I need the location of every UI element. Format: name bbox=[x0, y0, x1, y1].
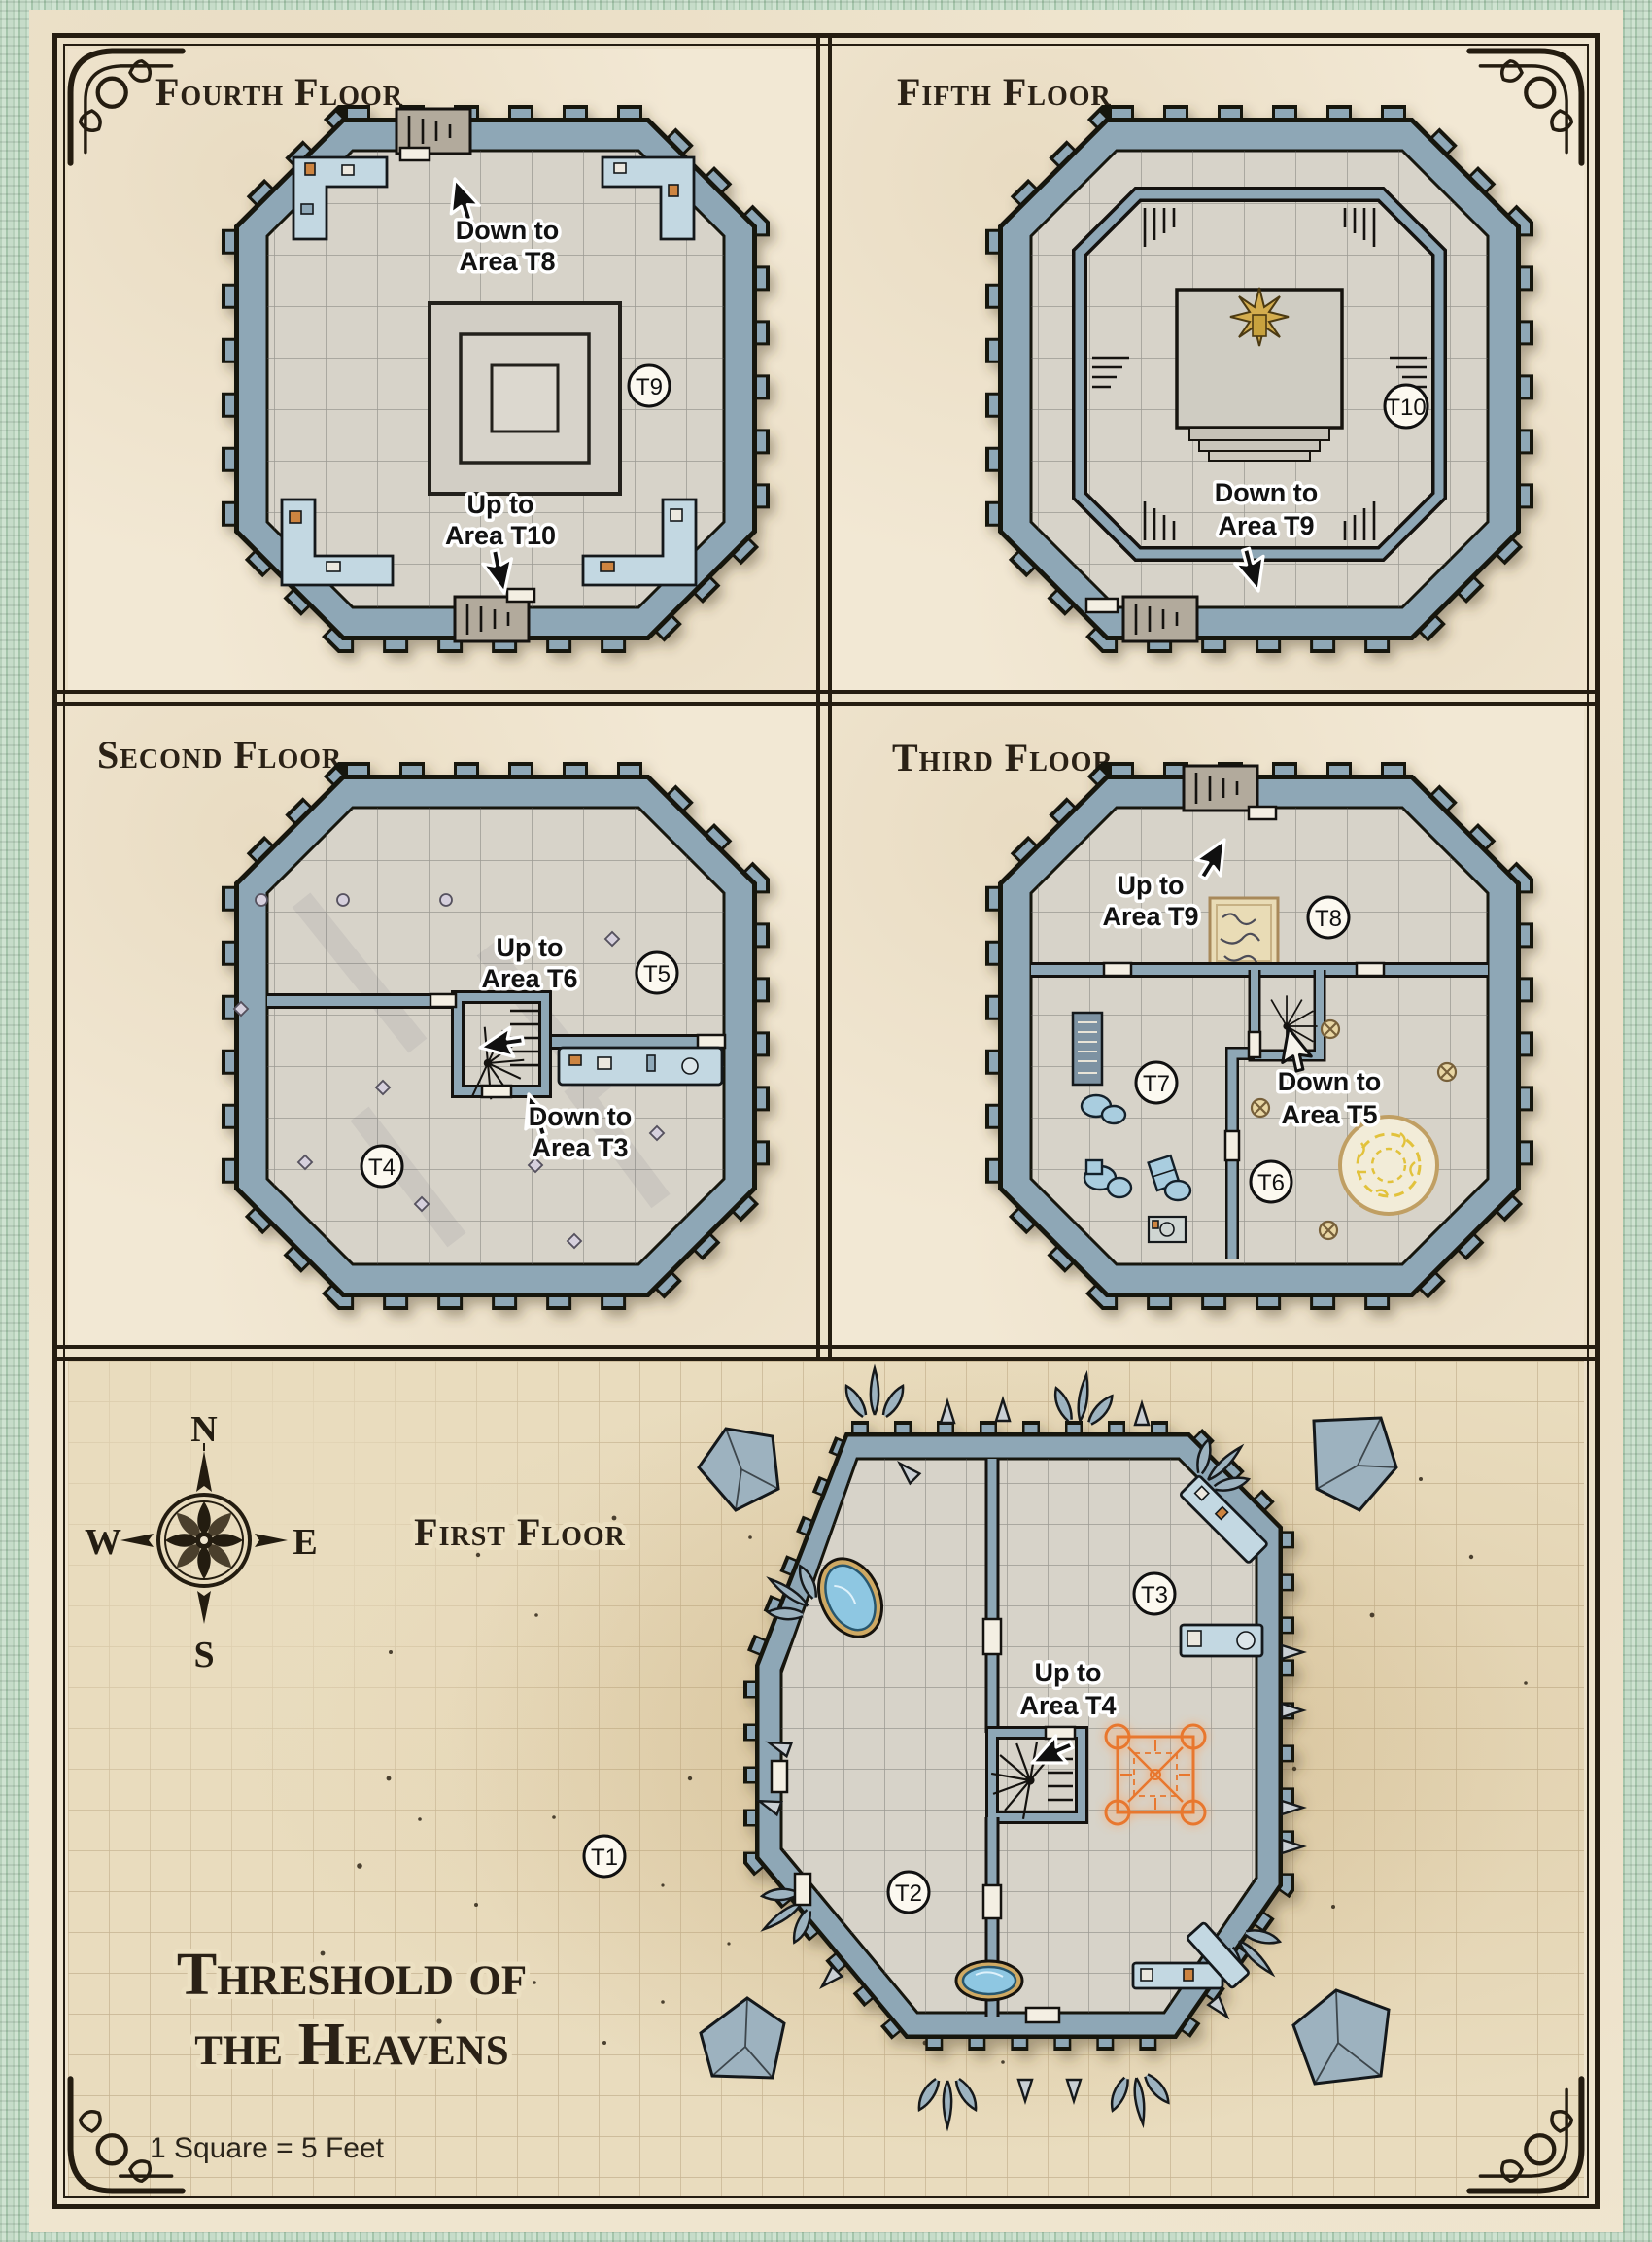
fifth-floor-map: Fifth Floor bbox=[832, 49, 1584, 690]
stair-label-up: Area T9 bbox=[1102, 902, 1198, 931]
door bbox=[1046, 1727, 1075, 1739]
svg-text:T3: T3 bbox=[1141, 1582, 1168, 1608]
stair-label-down: Down to bbox=[1278, 1067, 1381, 1096]
svg-text:T4: T4 bbox=[368, 1155, 396, 1181]
stair-label-down: Down to bbox=[456, 216, 559, 245]
panel-title: Fifth Floor bbox=[897, 70, 1112, 114]
stair-label-up: Area T6 bbox=[481, 964, 577, 993]
third-floor-map: Third Floor bbox=[832, 706, 1584, 1345]
floor-panel-fourth: Fourth Floor Down to bbox=[68, 49, 816, 690]
stair-label-up: Up to bbox=[467, 490, 534, 519]
door bbox=[1249, 1032, 1260, 1057]
compass-label-n: N bbox=[190, 1409, 217, 1450]
parchment-page: Fourth Floor Down to bbox=[29, 10, 1623, 2232]
stairs-up-icon bbox=[1184, 766, 1257, 811]
stair-label-down: Down to bbox=[529, 1102, 632, 1131]
stair-label-up: Up to bbox=[497, 933, 564, 962]
statue-icon bbox=[1230, 288, 1289, 346]
door bbox=[772, 1761, 787, 1792]
pool bbox=[956, 1961, 1022, 2000]
stair-label-up: Area T4 bbox=[1019, 1691, 1116, 1720]
central-stepped-platform bbox=[430, 303, 620, 494]
first-floor-map: N E S W First Floor bbox=[68, 1361, 1584, 2196]
area-marker-t2: T2 bbox=[888, 1872, 929, 1913]
stair-label-up: Up to bbox=[1118, 871, 1185, 900]
svg-text:T2: T2 bbox=[895, 1880, 922, 1907]
door bbox=[983, 1885, 1001, 1918]
map-sheet: Fourth Floor Down to bbox=[0, 0, 1652, 2242]
panel-divider-horizontal bbox=[52, 1345, 1600, 1361]
area-marker-t8: T8 bbox=[1308, 897, 1349, 938]
svg-text:T1: T1 bbox=[591, 1845, 618, 1871]
door bbox=[430, 994, 456, 1007]
rug bbox=[1210, 898, 1278, 968]
door bbox=[698, 1035, 725, 1048]
area-marker-t4: T4 bbox=[361, 1146, 402, 1187]
door bbox=[482, 1086, 511, 1097]
door bbox=[1026, 2008, 1059, 2022]
workbench bbox=[559, 1048, 722, 1085]
stair-label-up: Area T10 bbox=[445, 521, 556, 550]
svg-text:T6: T6 bbox=[1257, 1170, 1285, 1196]
stair-label-down: Down to bbox=[1215, 478, 1318, 507]
svg-text:T7: T7 bbox=[1143, 1071, 1170, 1097]
stair-label-down: Area T3 bbox=[532, 1133, 628, 1162]
door bbox=[1104, 963, 1131, 976]
door bbox=[983, 1619, 1001, 1654]
compass-label-s: S bbox=[193, 1635, 214, 1675]
panel-title: First Floor bbox=[414, 1510, 626, 1554]
panel-title: Second Floor bbox=[97, 733, 342, 776]
stair-label-down: Area T9 bbox=[1218, 511, 1314, 540]
area-marker-t5: T5 bbox=[637, 952, 677, 993]
floor-panel-first: N E S W First Floor bbox=[68, 1361, 1584, 2196]
map-title-line2: the Heavens bbox=[194, 2012, 508, 2078]
stair-label-up: Up to bbox=[1035, 1658, 1102, 1687]
svg-text:T8: T8 bbox=[1315, 906, 1342, 932]
stairs-down-icon bbox=[1123, 597, 1197, 641]
panel-title: Third Floor bbox=[892, 736, 1114, 779]
door bbox=[1249, 807, 1276, 819]
compass-label-e: E bbox=[293, 1522, 317, 1563]
stair-label-down: Area T8 bbox=[459, 247, 555, 276]
door bbox=[507, 589, 534, 602]
area-marker-t9: T9 bbox=[629, 365, 670, 406]
floor-panel-third: Third Floor bbox=[832, 706, 1584, 1345]
door bbox=[1357, 963, 1384, 976]
svg-text:T5: T5 bbox=[643, 961, 671, 987]
floor-panel-fifth: Fifth Floor bbox=[832, 49, 1584, 690]
stair-label-down: Area T5 bbox=[1281, 1100, 1377, 1129]
area-marker-t7: T7 bbox=[1136, 1062, 1177, 1103]
area-marker-t1: T1 bbox=[584, 1836, 625, 1877]
scale-note: 1 Square = 5 Feet bbox=[150, 2132, 385, 2164]
panel-divider-horizontal bbox=[52, 690, 1600, 706]
magic-circle-yellow bbox=[1340, 1117, 1437, 1214]
svg-text:T10: T10 bbox=[1386, 395, 1426, 421]
map-title-line1: Threshold of bbox=[177, 1942, 527, 2008]
second-floor-map: Second Floor bbox=[68, 706, 816, 1345]
machine bbox=[1149, 1217, 1186, 1242]
door bbox=[795, 1874, 810, 1905]
door bbox=[400, 148, 430, 160]
area-marker-t3: T3 bbox=[1134, 1573, 1175, 1614]
svg-text:T9: T9 bbox=[636, 374, 663, 400]
floor-panel-second: Second Floor bbox=[68, 706, 816, 1345]
stairs-up-icon bbox=[455, 597, 529, 641]
area-marker-t6: T6 bbox=[1251, 1161, 1291, 1202]
door bbox=[1225, 1131, 1239, 1160]
fourth-floor-map: Fourth Floor Down to bbox=[68, 49, 816, 690]
compass-label-w: W bbox=[85, 1522, 121, 1563]
area-marker-t10: T10 bbox=[1385, 385, 1428, 428]
door bbox=[1086, 599, 1118, 612]
organ bbox=[1073, 1013, 1102, 1085]
